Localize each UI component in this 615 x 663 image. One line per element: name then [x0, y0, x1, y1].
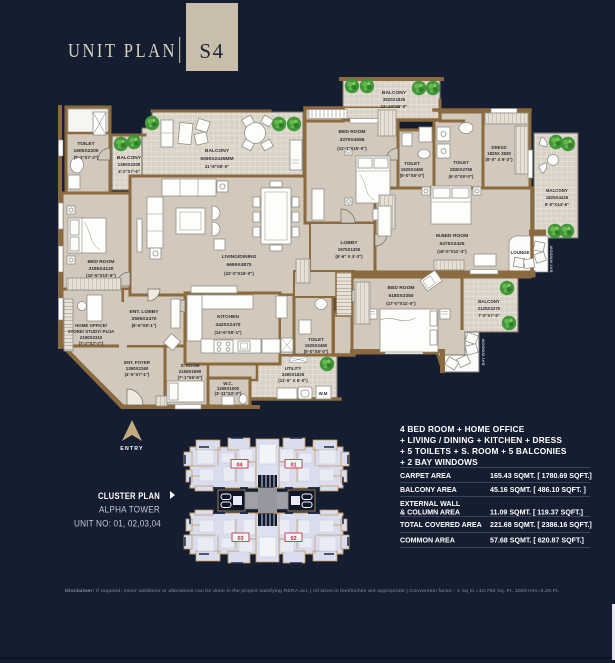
svg-text:(11'-5" X 6'-0"): (11'-5" X 6'-0"): [278, 378, 308, 383]
svg-text:1970X1300: 1970X1300: [338, 247, 361, 252]
svg-text:(8'-6"X8'-1"): (8'-6"X8'-1"): [132, 323, 157, 328]
svg-text:1825X 2830: 1825X 2830: [487, 151, 511, 156]
svg-text:UNIT NO: 01, 02,03,04: UNIT NO: 01, 02,03,04: [74, 519, 161, 529]
svg-text:165.43 SQMT. [ 1780.69 SQFT.]: 165.43 SQMT. [ 1780.69 SQFT.]: [490, 472, 592, 480]
svg-text:(10'-5"X13'-6"): (10'-5"X13'-6"): [86, 273, 116, 278]
svg-text:BALCONY AREA: BALCONY AREA: [400, 486, 457, 494]
svg-text:1520X2450: 1520X2450: [401, 167, 424, 172]
svg-text:LOUNGE: LOUNGE: [511, 250, 530, 255]
svg-text:ENT. LOBBY: ENT. LOBBY: [129, 309, 159, 315]
svg-text:HOME OFFICE/: HOME OFFICE/: [75, 323, 107, 328]
svg-text:5180X3350: 5180X3350: [388, 293, 413, 299]
svg-text:BALCONY: BALCONY: [382, 90, 407, 96]
svg-text:(5'-0"X8'-0"): (5'-0"X8'-0"): [304, 349, 329, 354]
svg-text:01: 01: [290, 463, 296, 469]
svg-text:2125X2270: 2125X2270: [478, 306, 501, 311]
svg-text:UNIT PLAN: UNIT PLAN: [68, 40, 177, 62]
svg-text:& COLUMN AREA: & COLUMN AREA: [400, 509, 460, 517]
svg-text:BAY WINDOW: BAY WINDOW: [481, 338, 486, 365]
svg-text:11.09 SQMT. [ 119.37 SQFT.]: 11.09 SQMT. [ 119.37 SQFT.]: [490, 509, 583, 517]
svg-text:TOTAL COVERED AREA: TOTAL COVERED AREA: [400, 521, 482, 529]
svg-text:TOILET: TOILET: [77, 141, 94, 147]
svg-text:S. ROOM: S. ROOM: [180, 363, 199, 368]
svg-text:LIVING/DINING: LIVING/DINING: [222, 254, 257, 260]
svg-text:04: 04: [236, 463, 243, 469]
svg-text:1525X2450: 1525X2450: [305, 343, 328, 348]
svg-text:(7'-2"X7'-7"): (7'-2"X7'-7"): [79, 341, 104, 346]
svg-text:57.68 SQMT. [ 620.87 SQFT.]: 57.68 SQMT. [ 620.87 SQFT.]: [490, 537, 584, 545]
svg-text:221.68 SQMT. [ 2386.16 SQFT.]: 221.68 SQMT. [ 2386.16 SQFT.]: [490, 521, 592, 529]
svg-text:STORE/ STUDY/ PUJA: STORE/ STUDY/ PUJA: [68, 329, 115, 334]
svg-text:LOBBY: LOBBY: [340, 240, 358, 246]
svg-text:2190X2310: 2190X2310: [80, 335, 103, 340]
svg-text:2155X1990: 2155X1990: [179, 369, 202, 374]
svg-text:ENT. FOYER: ENT. FOYER: [124, 360, 151, 365]
svg-text:KITCHEN: KITCHEN: [217, 314, 239, 320]
svg-text:1605X2200: 1605X2200: [73, 148, 98, 154]
svg-text:7'-0"X7'-5": 7'-0"X7'-5": [478, 313, 500, 318]
svg-text:3490X1825: 3490X1825: [282, 372, 305, 377]
svg-text:3920X1825: 3920X1825: [383, 97, 406, 102]
svg-text:(11'-1"X15'-0"): (11'-1"X15'-0"): [337, 146, 367, 151]
svg-text:3185X4120: 3185X4120: [88, 266, 113, 272]
svg-text:5475X3425: 5475X3425: [439, 241, 464, 247]
svg-text:1825X4425: 1825X4425: [546, 195, 569, 200]
svg-text:21'-8"X8'-0": 21'-8"X8'-0": [205, 164, 229, 169]
svg-text:+ LIVING / DINING + KITCHEN +: + LIVING / DINING + KITCHEN + DRESS: [400, 435, 562, 445]
svg-text:TOILET: TOILET: [404, 161, 420, 166]
svg-text:1830X2750: 1830X2750: [450, 167, 473, 172]
svg-text:45.16 SQMT. [ 486.10 SQFT. ]: 45.16 SQMT. [ 486.10 SQFT. ]: [490, 486, 586, 494]
svg-text:Disclaimer: If required, mino: Disclaimer: If required, minor additions…: [65, 588, 559, 594]
svg-text:(22'-0"X16'-0"): (22'-0"X16'-0"): [224, 271, 254, 276]
svg-text:1350X2160: 1350X2160: [126, 366, 149, 371]
svg-text:TOILET: TOILET: [453, 160, 469, 165]
svg-text:3370X4555: 3370X4555: [339, 137, 364, 143]
svg-text:COMMON AREA: COMMON AREA: [400, 537, 455, 545]
svg-text:EXTERNAL WALL: EXTERNAL WALL: [400, 500, 461, 508]
svg-text:DRESS: DRESS: [491, 145, 506, 150]
svg-text:2595X2470: 2595X2470: [131, 316, 156, 322]
svg-text:(7'-1"X6'-6"): (7'-1"X6'-6"): [178, 375, 203, 380]
svg-text:TOILET: TOILET: [308, 337, 324, 342]
svg-text:1260X2200: 1260X2200: [118, 162, 141, 167]
svg-text:+ 5 TOILETS + S. ROOM + 5 BALC: + 5 TOILETS + S. ROOM + 5 BALCONIES: [400, 446, 567, 456]
svg-text:(6'-0"X9'-0"): (6'-0"X9'-0"): [449, 174, 474, 179]
svg-text:ENTRY: ENTRY: [120, 446, 143, 452]
svg-text:12'-10"X6'-0": 12'-10"X6'-0": [381, 104, 408, 109]
svg-text:(6'-6" X 4'-3"): (6'-6" X 4'-3"): [335, 254, 363, 259]
svg-text:(3'-11"X3'-3"): (3'-11"X3'-3"): [215, 391, 243, 396]
svg-text:02: 02: [290, 536, 296, 542]
svg-text:BALCONY: BALCONY: [546, 188, 568, 193]
svg-text:(4'-5"X7'-1"): (4'-5"X7'-1"): [125, 372, 150, 377]
svg-text:(6'-0" X 9'-3"): (6'-0" X 9'-3"): [485, 157, 513, 162]
svg-text:(5'-3"X7'-3"): (5'-3"X7'-3"): [74, 155, 99, 160]
svg-text:6'-0"X14'-6": 6'-0"X14'-6": [545, 202, 569, 207]
svg-text:BALCONY: BALCONY: [117, 155, 142, 161]
svg-text:ALPHA TOWER: ALPHA TOWER: [99, 505, 160, 515]
svg-text:(18'-0"X11'-3"): (18'-0"X11'-3"): [437, 249, 467, 254]
svg-text:BAY WINDOW: BAY WINDOW: [549, 245, 554, 272]
svg-text:UTILITY: UTILITY: [285, 366, 302, 371]
svg-text:(17'-0"X11'-0"): (17'-0"X11'-0"): [386, 301, 416, 306]
svg-text:W.M: W.M: [319, 391, 328, 396]
svg-text:BALCONY: BALCONY: [478, 299, 500, 304]
svg-text:4 BED ROOM + HOME OFFICE: 4 BED ROOM + HOME OFFICE: [400, 424, 525, 434]
svg-text:4420X2470: 4420X2470: [215, 322, 240, 328]
svg-text:S4: S4: [199, 39, 224, 63]
svg-text:CLUSTER PLAN: CLUSTER PLAN: [98, 491, 160, 501]
svg-text:(14'-6"X8'-1"): (14'-6"X8'-1"): [214, 330, 242, 335]
svg-text:BED ROOM: BED ROOM: [339, 129, 366, 135]
svg-text:03: 03: [237, 536, 243, 542]
svg-text:M.BED ROOM: M.BED ROOM: [436, 233, 468, 239]
svg-text:BALCONY: BALCONY: [205, 148, 230, 154]
svg-text:CARPET AREA: CARPET AREA: [400, 472, 451, 480]
svg-text:(5'-0"X8'-0"): (5'-0"X8'-0"): [400, 173, 425, 178]
svg-text:+ 2 BAY WINDOWS: + 2 BAY WINDOWS: [400, 457, 478, 467]
svg-text:4'-2"X7'-6": 4'-2"X7'-6": [118, 169, 140, 174]
svg-text:BED ROOM: BED ROOM: [88, 259, 115, 265]
svg-text:BED ROOM: BED ROOM: [388, 285, 415, 291]
svg-text:6695X4870: 6695X4870: [226, 262, 251, 268]
svg-text:6590X2435MM: 6590X2435MM: [200, 156, 233, 162]
